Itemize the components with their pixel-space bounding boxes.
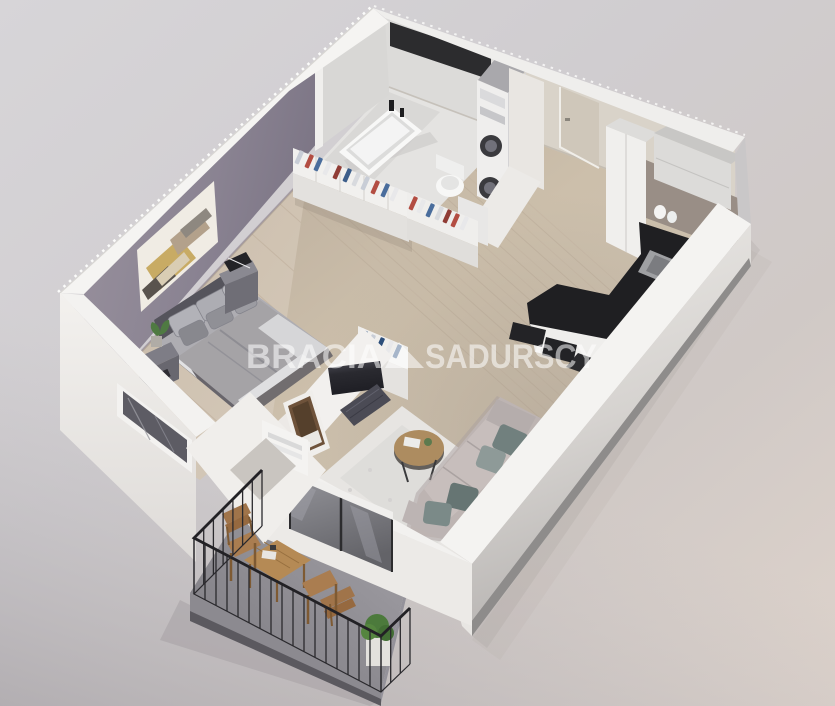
svg-text:SADURSCY: SADURSCY [425,338,597,376]
svg-text:BRACIA: BRACIA [246,338,382,376]
